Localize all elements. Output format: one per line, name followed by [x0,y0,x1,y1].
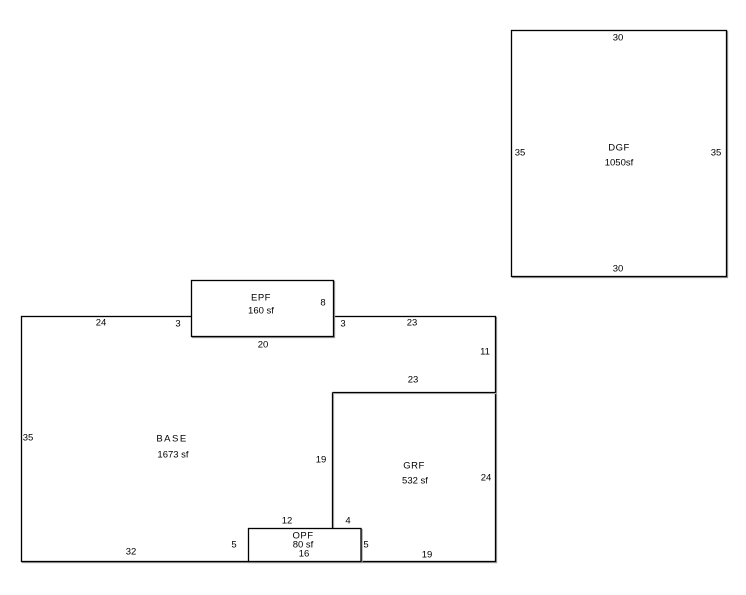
dim-grf-top: 23 [408,375,419,385]
area-label-grf: GRF [403,461,425,471]
area-size-grf: 532 sf [402,476,428,486]
dim-opf-top-right: 4 [345,516,350,526]
dim-epf-stub-right: 3 [340,319,345,329]
base-outline [22,317,496,562]
dim-base-top-right: 23 [407,318,418,328]
area-label-dgf: DGF [608,143,630,153]
dim-opf-right: 5 [363,540,368,550]
dim-base-left: 35 [23,433,34,443]
area-label-epf: EPF [251,293,271,303]
dim-base-bottom: 32 [126,547,137,557]
dim-opf-left: 5 [231,540,236,550]
dim-dgf-right: 35 [711,148,722,158]
dim-opf-top-left: 12 [282,516,293,526]
area-size-epf: 160 sf [248,306,274,316]
area-size-base: 1673 sf [157,450,188,460]
dim-base-top-left: 24 [96,318,107,328]
dim-dgf-top: 30 [613,33,624,43]
sketch-drawing [0,0,746,595]
dim-epf-height: 8 [320,298,325,308]
dim-dgf-left: 35 [515,148,526,158]
dim-grf-left: 19 [316,455,327,465]
area-size-dgf: 1050sf [605,158,634,168]
area-label-base: BASE [156,434,187,444]
dim-epf-bottom: 20 [258,340,269,350]
dim-grf-right: 24 [481,473,492,483]
floor-plan-sketch: 30 35 DGF 1050sf 35 30 EPF 160 sf 8 3 3 … [0,0,746,595]
dim-epf-stub-left: 3 [175,319,180,329]
dim-base-right: 11 [480,347,490,357]
dim-dgf-bottom: 30 [613,264,624,274]
dim-grf-bottom: 19 [422,550,433,560]
dgf-outline [512,31,727,277]
dim-opf-width: 16 [299,549,310,559]
